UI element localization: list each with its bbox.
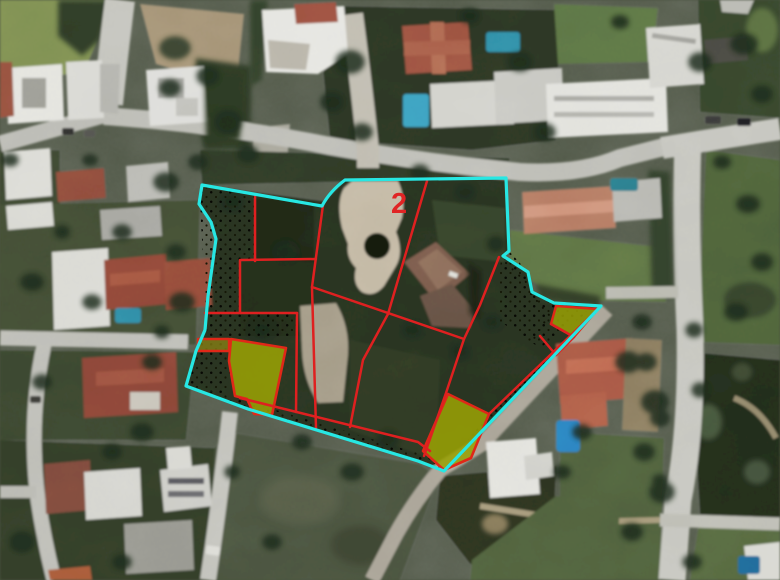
svg-text:2: 2 [391,188,407,220]
